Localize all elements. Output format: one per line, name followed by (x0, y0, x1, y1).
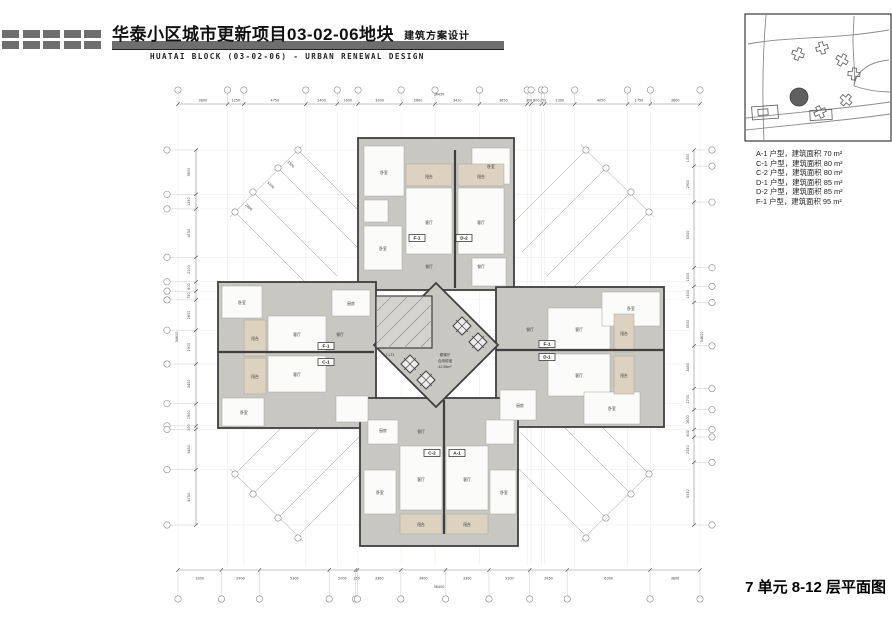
grid-bubble (218, 596, 224, 602)
core-lobby-area: 42.55m² (438, 365, 452, 369)
grid-bubble (709, 147, 715, 153)
grid-bubble (256, 596, 262, 602)
grid-bubble (334, 87, 340, 93)
dimension-value: 5300 (686, 231, 690, 240)
dimension-value: 300 (187, 424, 191, 430)
grid-bubble (164, 361, 170, 367)
diagonal-dim: 3300 (286, 160, 295, 169)
grid-bubble (164, 191, 170, 197)
grid-bubble (164, 522, 170, 528)
unit-tag: C-1 (322, 360, 330, 365)
grid-bubble (709, 199, 715, 205)
room-label: 卧室 (380, 170, 388, 175)
grid-bubble (355, 87, 361, 93)
grid-bubble (354, 596, 360, 602)
grid-bubble (709, 459, 715, 465)
room-label: 餐厅 (417, 429, 425, 434)
dimension-value: 3800 (671, 577, 680, 581)
dimension-value: 1250 (187, 197, 191, 206)
grid-bubble (326, 596, 332, 602)
grid-bubble (647, 87, 653, 93)
unit-tag: D-2 (460, 236, 468, 241)
grid-bubble (528, 87, 534, 93)
dimension-value: 2900 (236, 577, 245, 581)
grid-bubble (697, 87, 703, 93)
room-label: 阳台 (251, 374, 259, 379)
dimension-value: 250 (540, 98, 546, 102)
dimension-value: 1250 (231, 98, 240, 102)
grid-bubble (624, 87, 630, 93)
grid-bubble (241, 87, 247, 93)
room-label: 阳台 (477, 174, 485, 179)
unit-tag: F-1 (323, 344, 330, 349)
dimension-value: 4050 (597, 98, 606, 102)
dimension-value: 3300 (375, 577, 384, 581)
dimension-value: 1700 (686, 395, 690, 404)
grid-bubble (709, 426, 715, 432)
stair-core (376, 296, 432, 348)
dimension-value: 1750 (635, 98, 644, 102)
dimension-value: 3450 (187, 445, 191, 454)
room-label: 客厅 (575, 327, 583, 332)
room-label: 餐厅 (336, 332, 344, 337)
dimension-value: 3800 (198, 98, 207, 102)
grid-bubble (164, 297, 170, 303)
room-label: 阳台 (425, 174, 433, 179)
grid-bubble (564, 596, 570, 602)
room-label: 卧室 (238, 300, 246, 305)
dimension-value: 2300 (555, 98, 564, 102)
room-label: 阳台 (251, 336, 259, 341)
room-label: 客厅 (477, 220, 485, 225)
grid-bubble (709, 522, 715, 528)
grid-bubble (572, 87, 578, 93)
room-label: 厨房 (347, 301, 355, 306)
grid-bubble (709, 343, 715, 349)
dimension-value: 3400 (187, 380, 191, 389)
grid-bubble (709, 265, 715, 271)
grid-bubble (476, 87, 482, 93)
grid-bubble (164, 147, 170, 153)
grid-bubble (164, 288, 170, 294)
dimension-value: 2000 (338, 577, 347, 581)
dimension-value: 300 (526, 98, 532, 102)
diagonal-dim: 2800 (244, 203, 253, 212)
room-label: 阳台 (463, 522, 471, 527)
unit-tag: A-1 (453, 451, 461, 456)
room-label: 客厅 (425, 220, 433, 225)
grid-bubble (709, 163, 715, 169)
dimension-value: 4750 (271, 98, 280, 102)
room-label: 卧室 (240, 410, 248, 415)
dimension-value: 2900 (187, 343, 191, 352)
room-label: 客厅 (293, 332, 301, 337)
dimension-value: 3800 (671, 98, 680, 102)
dimension-total: 36450 (434, 585, 445, 589)
grid-bubble (175, 87, 181, 93)
grid-bubble (647, 596, 653, 602)
dimension-value: 3400 (419, 577, 428, 581)
room-label: 卧室 (627, 306, 635, 311)
grid-bubble (164, 254, 170, 260)
unit-tag: C-2 (428, 451, 436, 456)
unit-tag: F-1 (544, 342, 551, 347)
key-plan-highlighted-building (790, 88, 808, 106)
unit-tag: D-1 (543, 355, 551, 360)
grid-bubble (709, 434, 715, 440)
grid-bubble (709, 385, 715, 391)
grid-bubble (709, 407, 715, 413)
dimension-value: 2050 (686, 445, 690, 454)
room-label: 餐厅 (477, 264, 485, 269)
grid-bubble (486, 596, 492, 602)
room-label: 卧室 (376, 490, 384, 495)
dimension-value: 750 (187, 292, 191, 298)
dimension-value: 2400 (317, 98, 326, 102)
floor-plan-drawing: 3300 5200 2800 (0, 0, 892, 628)
dimension-value: 3300 (375, 98, 384, 102)
core-lobby-label2: 合用前室 (438, 358, 453, 363)
grid-bubble (442, 596, 448, 602)
dimension-value: 800 (533, 98, 539, 102)
dimension-value: 1900 (187, 410, 191, 419)
dimension-value: 4750 (187, 493, 191, 502)
room-label: 厨房 (379, 428, 387, 433)
grid-bubble (164, 206, 170, 212)
dimension-value: 3410 (453, 98, 462, 102)
dimension-value: 3650 (499, 98, 508, 102)
dimension-value: 150 (353, 577, 359, 581)
dimension-value: 3800 (187, 168, 191, 177)
room-label: 阳台 (620, 331, 628, 336)
room-label: 阳台 (620, 373, 628, 378)
dimension-value: 800 (187, 283, 191, 289)
dimension-value: 600 (686, 430, 690, 436)
drawing-sheet: 华泰小区城市更新项目03-02-06地块 建筑方案设计 HUATAI BLOCK… (0, 0, 892, 628)
dimension-value: 3300 (195, 577, 204, 581)
room-label: 卧室 (608, 406, 616, 411)
grid-bubble (709, 299, 715, 305)
dimension-total: 34600 (700, 332, 704, 343)
dimension-value: 2600 (414, 98, 423, 102)
dimension-value: 3100 (505, 577, 514, 581)
grid-bubble (224, 87, 230, 93)
grid-bubble (398, 87, 404, 93)
grid-bubble (164, 400, 170, 406)
room-label: 卧室 (487, 164, 495, 169)
dimension-value: 2600 (187, 311, 191, 320)
grid-bubble (398, 596, 404, 602)
room-label: 客厅 (575, 373, 583, 378)
room-label: 餐厅 (526, 327, 534, 332)
grid-bubble (697, 596, 703, 602)
grid-bubble (542, 87, 548, 93)
dimension-value: 5300 (290, 577, 299, 581)
grid-bubble (527, 596, 533, 602)
dimension-value: 2850 (544, 577, 553, 581)
diagonal-dim: 5200 (266, 181, 275, 190)
dimension-value: 6300 (604, 577, 613, 581)
core-lobby-label: 候梯厅 (440, 352, 451, 357)
dimension-value: 1300 (686, 290, 690, 299)
dimension-value: 5050 (686, 489, 690, 498)
key-plan (745, 14, 891, 141)
building-footprint: 候梯厅 合用前室 42.55m² 7-LT1 (218, 138, 664, 546)
room-label: 卧室 (379, 246, 387, 251)
grid-bubble (175, 596, 181, 602)
room-label: 厨房 (516, 403, 524, 408)
room-label: 阳台 (417, 522, 425, 527)
stair-label: 7-LT1 (385, 353, 394, 357)
room-label: 餐厅 (425, 264, 433, 269)
dimension-value: 2900 (686, 180, 690, 189)
diagonal-grid-top-right (502, 145, 654, 296)
dimension-value: 2100 (187, 265, 191, 274)
grid-bubble (164, 426, 170, 432)
dimension-value: 4150 (187, 229, 191, 238)
dimension-value: 1500 (686, 273, 690, 282)
dimension-value: 1600 (343, 98, 352, 102)
grid-bubble (164, 279, 170, 285)
dimension-value: 3300 (463, 577, 472, 581)
grid-bubble (164, 466, 170, 472)
dimension-value: 1600 (686, 415, 690, 424)
grid-bubble (709, 283, 715, 289)
room-label: 卧室 (500, 490, 508, 495)
room-label: 客厅 (463, 477, 471, 482)
room-label: 客厅 (293, 372, 301, 377)
grid-bubble (303, 87, 309, 93)
dimension-total: 36450 (434, 93, 445, 97)
room-label: 客厅 (417, 477, 425, 482)
dimension-total: 34600 (175, 332, 179, 343)
grid-bubble (164, 327, 170, 333)
unit-tag: F-1 (414, 236, 421, 241)
dimension-value: 3500 (686, 320, 690, 329)
dimension-value: 3450 (686, 363, 690, 372)
dimension-value: 1300 (686, 154, 690, 163)
